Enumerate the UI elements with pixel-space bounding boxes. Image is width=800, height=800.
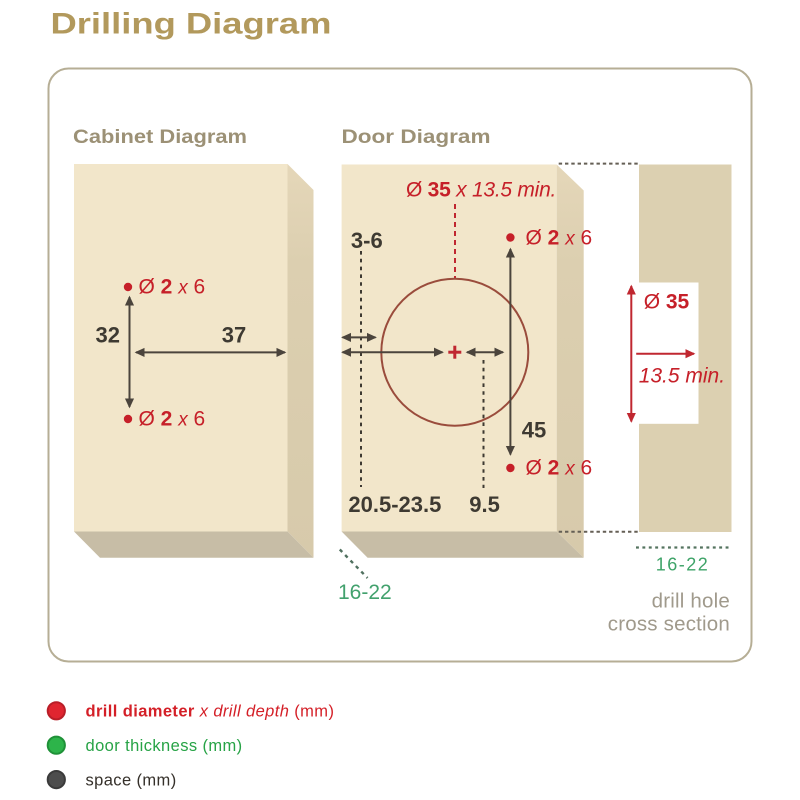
svg-text:32: 32 <box>96 323 120 348</box>
svg-text:cross section: cross section <box>608 613 730 636</box>
svg-text:Ø 35 x 13.5 min.: Ø 35 x 13.5 min. <box>406 179 556 202</box>
svg-text:drill diameter x drill depth (: drill diameter x drill depth (mm) <box>86 703 335 721</box>
svg-text:Ø 2 x 6: Ø 2 x 6 <box>526 457 593 480</box>
svg-text:20.5-23.5: 20.5-23.5 <box>348 492 441 517</box>
svg-text:door thickness (mm): door thickness (mm) <box>86 737 243 755</box>
svg-text:3-6: 3-6 <box>351 228 383 253</box>
svg-text:Ø 2 x 6: Ø 2 x 6 <box>139 408 206 431</box>
svg-text:Drilling Diagram: Drilling Diagram <box>51 8 332 41</box>
svg-text:Door Diagram: Door Diagram <box>342 127 491 148</box>
svg-text:45: 45 <box>522 418 546 443</box>
svg-text:Ø 35: Ø 35 <box>644 291 690 314</box>
svg-text:Cabinet Diagram: Cabinet Diagram <box>73 127 247 148</box>
svg-text:space (mm): space (mm) <box>86 772 177 790</box>
svg-text:13.5 min.: 13.5 min. <box>639 365 725 388</box>
svg-text:16-22: 16-22 <box>338 581 392 604</box>
svg-text:16-22: 16-22 <box>656 555 710 575</box>
svg-text:drill hole: drill hole <box>652 590 730 613</box>
svg-text:Ø 2 x 6: Ø 2 x 6 <box>139 276 206 299</box>
svg-text:Ø 2 x 6: Ø 2 x 6 <box>526 227 593 250</box>
svg-text:37: 37 <box>222 323 246 348</box>
svg-text:9.5: 9.5 <box>469 492 500 517</box>
